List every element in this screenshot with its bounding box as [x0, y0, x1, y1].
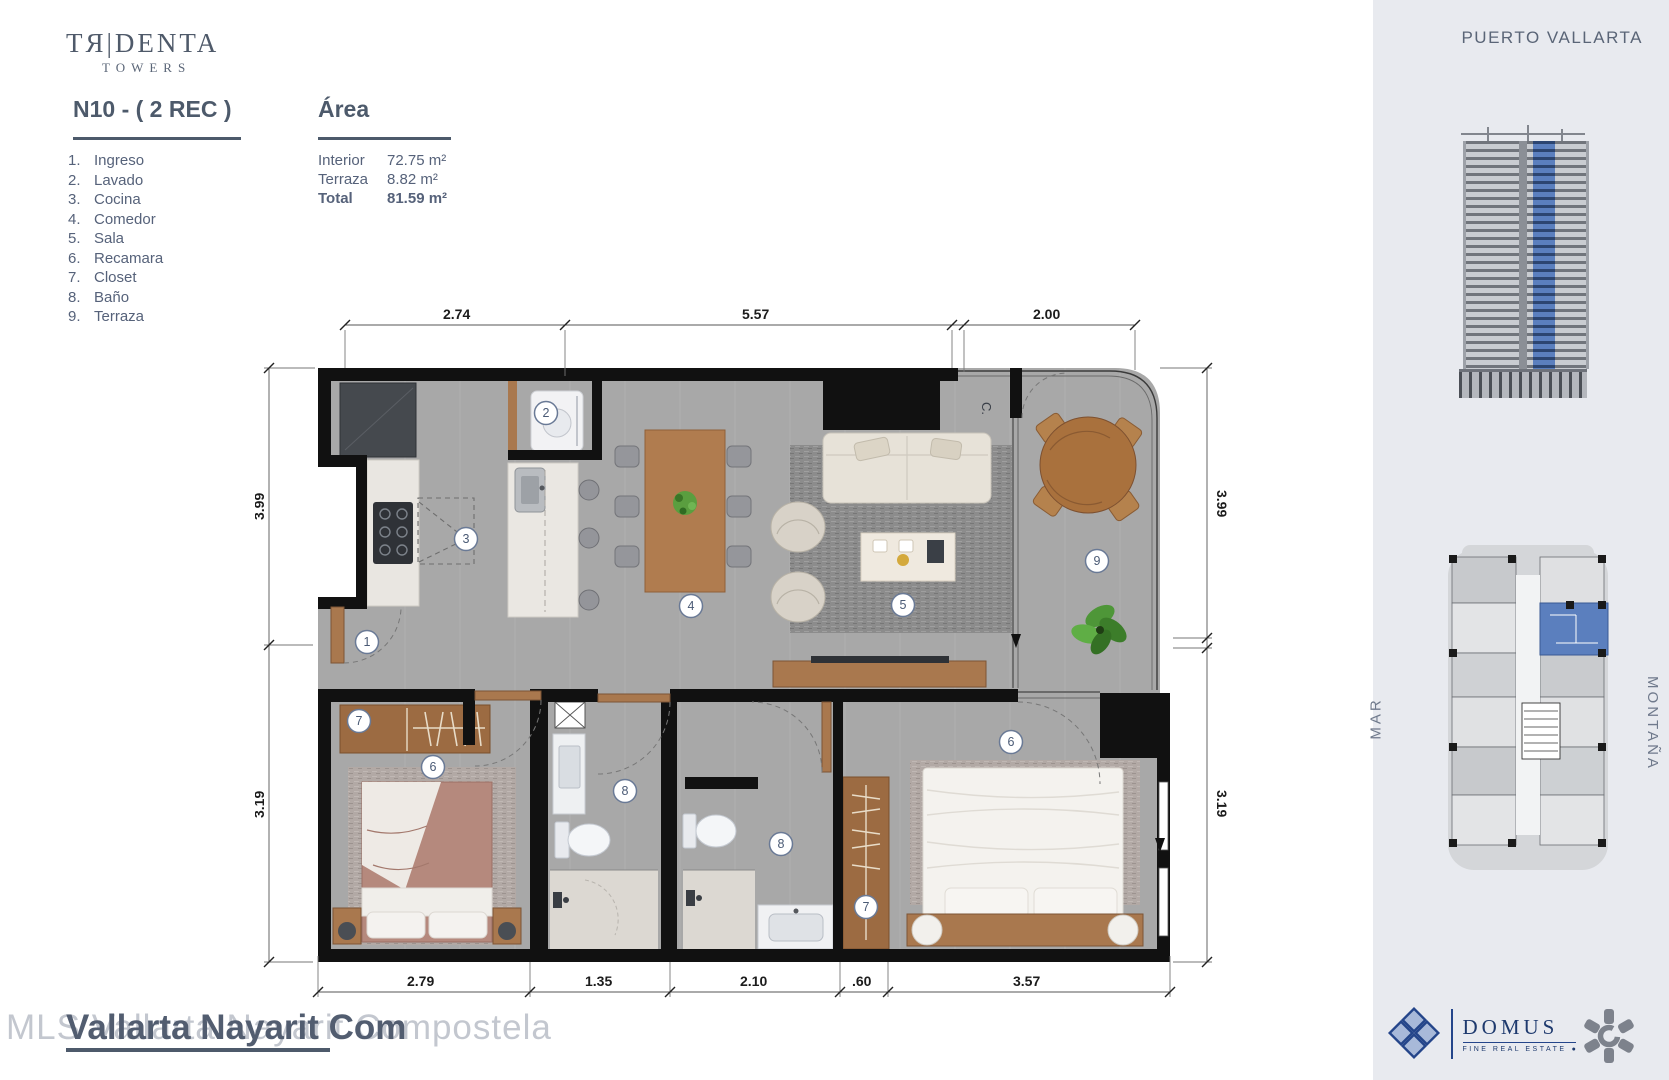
closet-2 — [843, 777, 889, 949]
closet-c-label: C. — [979, 402, 994, 415]
shower-1-floor — [550, 870, 658, 949]
marker-bath-2: 8 — [778, 837, 785, 851]
watermark-rule — [66, 1048, 330, 1052]
dimensions-left: 3.99 3.19 — [255, 363, 315, 967]
area-title-rule — [318, 137, 451, 140]
dim-bottom-1: 2.79 — [407, 973, 434, 989]
dim-bottom-2: 1.35 — [585, 973, 612, 989]
marker-closet-2: 7 — [863, 900, 870, 914]
marker-bath-1: 8 — [622, 784, 629, 798]
tower-elevation-image — [1457, 125, 1589, 401]
legend-item: 8.Baño — [68, 288, 163, 308]
legend-item: 4.Comedor — [68, 210, 163, 230]
dim-left-2: 3.19 — [255, 791, 267, 818]
unit-title-rule — [73, 137, 241, 140]
compass-sea-label: MAR — [1368, 697, 1385, 739]
marker-kitchen: 3 — [463, 532, 470, 546]
marker-dining: 4 — [688, 599, 695, 613]
unit-title: N10 - ( 2 REC ) — [73, 96, 231, 123]
marker-bedroom-1: 6 — [430, 760, 437, 774]
dim-right-1: 3.99 — [1214, 490, 1230, 517]
marker-living: 5 — [900, 598, 907, 612]
brand-logo-sub: TOWERS — [102, 60, 191, 76]
toilet-2-icon — [696, 815, 736, 847]
toilet-1-icon — [568, 824, 610, 856]
logo-divider — [1451, 1009, 1453, 1059]
sidebar: PUERTO VALLARTA — [1373, 0, 1669, 1080]
marker-laundry: 2 — [543, 406, 550, 420]
dim-left-1: 3.99 — [255, 493, 267, 520]
compass-mountain-label: MONTAÑA — [1644, 676, 1661, 771]
dim-top-1: 2.74 — [443, 306, 470, 322]
dim-top-3: 2.00 — [1033, 306, 1060, 322]
stair-core — [1522, 703, 1560, 759]
shower-head-icon — [686, 890, 695, 906]
dim-top-2: 5.57 — [742, 306, 769, 322]
dimensions-top: 2.74 5.57 2.00 — [340, 306, 1140, 376]
domus-tagline: FINE REAL ESTATE — [1463, 1046, 1567, 1053]
area-row-total: Total81.59 m² — [318, 189, 447, 208]
brand-logo: TЯ|DENTA — [66, 28, 219, 59]
legend-item: 3.Cocina — [68, 190, 163, 210]
armchair-icon — [771, 572, 825, 622]
tv-console-icon — [773, 661, 986, 687]
marker-closet-1: 7 — [356, 714, 363, 728]
legend-item: 2.Lavado — [68, 171, 163, 191]
domus-logo: DOMUS FINE REAL ESTATE ● — [1387, 1006, 1576, 1062]
armchair-icon — [771, 502, 825, 552]
laundry-door — [508, 378, 517, 452]
highlighted-unit-stack — [1533, 141, 1555, 369]
shower-head-icon — [553, 892, 562, 908]
room-legend: 1.Ingreso 2.Lavado 3.Cocina 4.Comedor 5.… — [68, 151, 163, 327]
marker-bedroom-2: 6 — [1008, 735, 1015, 749]
watermark-dark-text: Vallarta Nayarit Com — [66, 1008, 406, 1048]
legend-item: 5.Sala — [68, 229, 163, 249]
legend-item: 9.Terraza — [68, 307, 163, 327]
bedroom-2 — [907, 760, 1143, 946]
flyer-page: TЯ|DENTA TOWERS N10 - ( 2 REC ) 1.Ingres… — [0, 0, 1669, 1080]
domus-name: DOMUS — [1463, 1015, 1576, 1040]
dimensions-bottom: 2.79 1.35 2.10 .60 3.57 — [313, 956, 1175, 997]
area-title: Área — [318, 96, 369, 123]
location-label: PUERTO VALLARTA — [1461, 28, 1643, 48]
domus-dot-icon: ● — [1572, 1046, 1576, 1053]
shower-2-floor — [683, 870, 755, 949]
key-plan — [1428, 545, 1628, 875]
floor-plan: C. 1 2 3 4 5 9 7 6 8 8 7 6 — [255, 290, 1255, 1005]
key-plan-highlighted-unit — [1540, 603, 1608, 655]
area-row: Interior72.75 m² — [318, 151, 447, 170]
area-row: Terraza8.82 m² — [318, 170, 447, 189]
pinwheel-mark-icon — [1579, 1006, 1639, 1066]
dim-bottom-3: 2.10 — [740, 973, 767, 989]
dim-right-2: 3.19 — [1214, 790, 1230, 817]
dim-bottom-5: 3.57 — [1013, 973, 1040, 989]
dim-bottom-4: .60 — [852, 973, 872, 989]
area-table: Interior72.75 m² Terraza8.82 m² Total81.… — [318, 151, 447, 208]
domus-mark-icon — [1387, 1006, 1441, 1062]
marker-entry: 1 — [364, 635, 371, 649]
tv-icon — [811, 656, 949, 663]
marker-terrace: 9 — [1094, 554, 1101, 568]
legend-item: 6.Recamara — [68, 249, 163, 269]
legend-item: 7.Closet — [68, 268, 163, 288]
legend-item: 1.Ingreso — [68, 151, 163, 171]
